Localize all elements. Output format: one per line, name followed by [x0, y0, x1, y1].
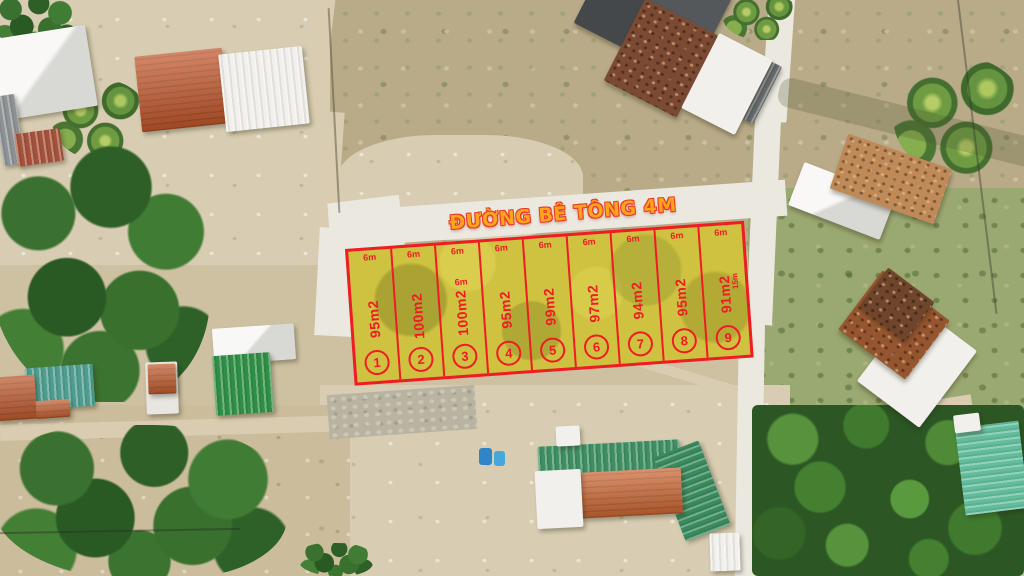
- plot-width-label: 6m: [670, 230, 684, 241]
- plot-width-label: 6m: [582, 236, 596, 247]
- plot-number-badge: 3: [452, 343, 479, 370]
- roof-white-top-left-2: [218, 46, 310, 132]
- tower-orange-roof: [147, 364, 176, 395]
- house-orange-top-left: [134, 48, 229, 133]
- plot-cell: 6m 91m2 9: [697, 224, 750, 358]
- bushes-bottom-center: [298, 543, 373, 576]
- roof-white-bottom-center: [535, 469, 584, 529]
- roof-white-small-bottom-right: [953, 412, 981, 433]
- shed-white-right-of-house: [709, 532, 740, 571]
- plot-area-label: 100m2: [452, 290, 471, 337]
- roof-orange-bottom-left-1: [0, 375, 37, 422]
- plot-area-label: 91m2: [716, 275, 735, 314]
- plot-area-label: 97m2: [584, 285, 603, 324]
- plot-area-label: 99m2: [540, 288, 559, 327]
- plot-area-label: 95m2: [365, 300, 384, 339]
- plot-number-badge: 1: [364, 349, 391, 376]
- plot-width-label: 6m: [714, 227, 728, 238]
- plot-number-badge: 5: [539, 337, 566, 364]
- plot-width-label: 6m: [451, 246, 465, 257]
- roof-orange-bottom-center: [579, 467, 683, 518]
- plot-number-badge: 4: [495, 340, 522, 367]
- roof-orange-bottom-left-2: [35, 399, 70, 419]
- aerial-photo: 6m 15m 6m 95m2 1 6m 100m2 2 6m 100m2 3 6…: [0, 0, 1024, 576]
- plot-width-label: 6m: [363, 252, 377, 263]
- plot-overlay: 6m 15m 6m 95m2 1 6m 100m2 2 6m 100m2 3 6…: [345, 221, 754, 386]
- water-tank-blue-1: [479, 448, 492, 465]
- plot-width-label: 6m: [538, 239, 552, 250]
- plot-number-badge: 2: [408, 346, 435, 373]
- structure-teal-bottom-right: [955, 420, 1024, 515]
- palm-trees-top-center: [723, 0, 801, 40]
- trees-bottom-left: [0, 425, 287, 576]
- plot-number-badge: 9: [715, 324, 742, 351]
- plot-area-label: 94m2: [628, 281, 647, 320]
- plot-number-badge: 8: [671, 327, 698, 354]
- trees-left-mid: [128, 120, 346, 362]
- plot-area-label: 95m2: [496, 291, 515, 330]
- shed-white-small-bottom-center: [555, 425, 580, 446]
- shed-rust-left: [14, 128, 64, 167]
- water-tank-blue-2: [494, 451, 505, 466]
- plot-number-badge: 7: [627, 331, 654, 358]
- plot-width-label: 6m: [626, 233, 640, 244]
- plot-area-label: 100m2: [408, 293, 427, 340]
- roof-green-corrugated-bottom-left: [212, 352, 274, 416]
- plot-area-label: 95m2: [672, 278, 691, 317]
- plot-number-badge: 6: [583, 334, 610, 361]
- plot-width-label: 6m: [407, 249, 421, 260]
- plot-width-label: 6m: [494, 243, 508, 254]
